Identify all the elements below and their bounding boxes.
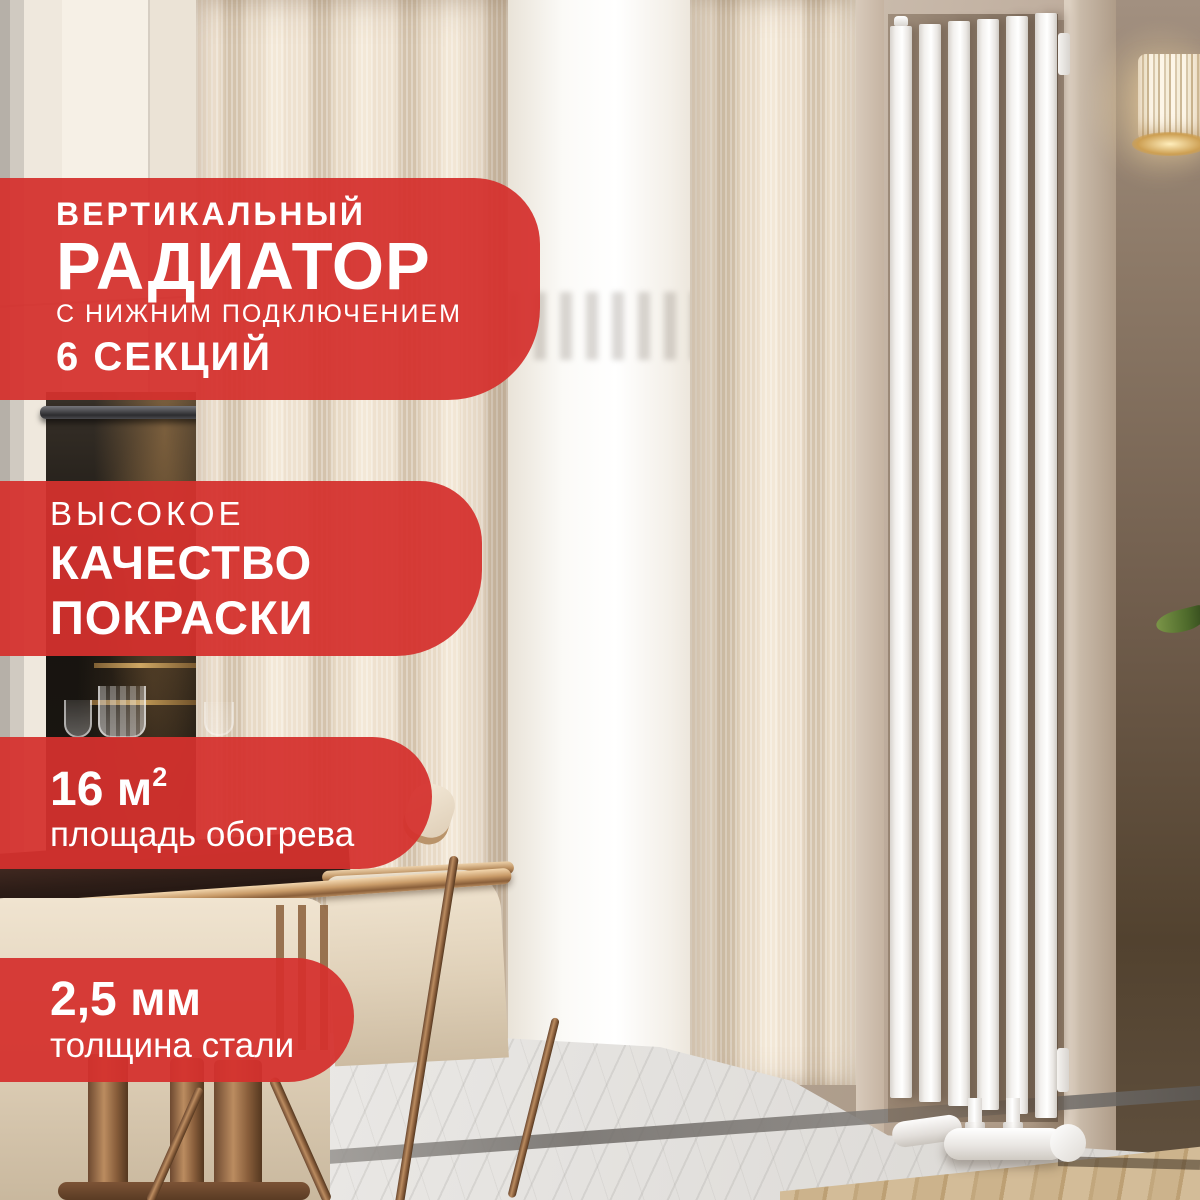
radiator-fin xyxy=(1035,13,1057,1118)
steel-thickness-label: толщина стали xyxy=(50,1026,354,1066)
heating-area-number: 16 м xyxy=(50,763,152,816)
oven-handle xyxy=(40,406,208,419)
valve-cap xyxy=(1050,1124,1086,1162)
radiator-fin xyxy=(977,19,999,1110)
wall-bracket xyxy=(1058,33,1070,75)
badge-paint-quality: ВЫСОКОЕ КАЧЕСТВО ПОКРАСКИ xyxy=(0,481,482,656)
curtain-right xyxy=(690,0,858,1085)
radiator-fin xyxy=(890,26,912,1098)
window-sheer xyxy=(508,0,704,1068)
badge-steel-thickness: 2,5 мм толщина стали xyxy=(0,958,354,1082)
radiator-fin xyxy=(1006,16,1028,1114)
shelf-rail xyxy=(94,663,196,668)
heating-area-label: площадь обогрева xyxy=(50,814,432,856)
badge-quality-line-high: ВЫСОКОЕ xyxy=(50,493,482,535)
wall-corner xyxy=(1064,0,1118,1172)
wine-glass xyxy=(204,702,234,736)
steel-thickness-value: 2,5 мм xyxy=(50,974,354,1026)
badge-product-title: ВЕРТИКАЛЬНЫЙ РАДИАТОР С НИЖНИМ ПОДКЛЮЧЕН… xyxy=(0,178,540,400)
badge-title-line-connection: С НИЖНИМ ПОДКЛЮЧЕНИЕМ xyxy=(56,297,540,332)
product-photo: ВЕРТИКАЛЬНЫЙ РАДИАТОР С НИЖНИМ ПОДКЛЮЧЕН… xyxy=(0,0,1200,1200)
badge-heating-area: 16 м2 площадь обогрева xyxy=(0,737,432,869)
radiator-back-panel xyxy=(888,14,1058,1122)
table-foot xyxy=(58,1182,310,1200)
area-superscript: 2 xyxy=(152,762,167,792)
chandelier-rim xyxy=(1132,132,1200,156)
badge-title-line-radiator: РАДИАТОР xyxy=(56,236,540,297)
wall-bracket xyxy=(1057,1048,1069,1092)
radiator-fin xyxy=(919,24,941,1102)
glass-tumbler xyxy=(98,686,146,738)
air-vent-cap xyxy=(894,16,908,26)
wall-edge xyxy=(856,0,886,1178)
heating-area-value: 16 м2 xyxy=(50,755,432,814)
radiator-fin xyxy=(948,21,970,1106)
badge-quality-line-paint: ПОКРАСКИ xyxy=(50,590,482,645)
bottom-valve xyxy=(944,1128,1066,1160)
badge-quality-line-quality: КАЧЕСТВО xyxy=(50,535,482,590)
badge-title-line-sections: 6 СЕКЦИЙ xyxy=(56,332,540,382)
wine-glass xyxy=(64,700,92,738)
